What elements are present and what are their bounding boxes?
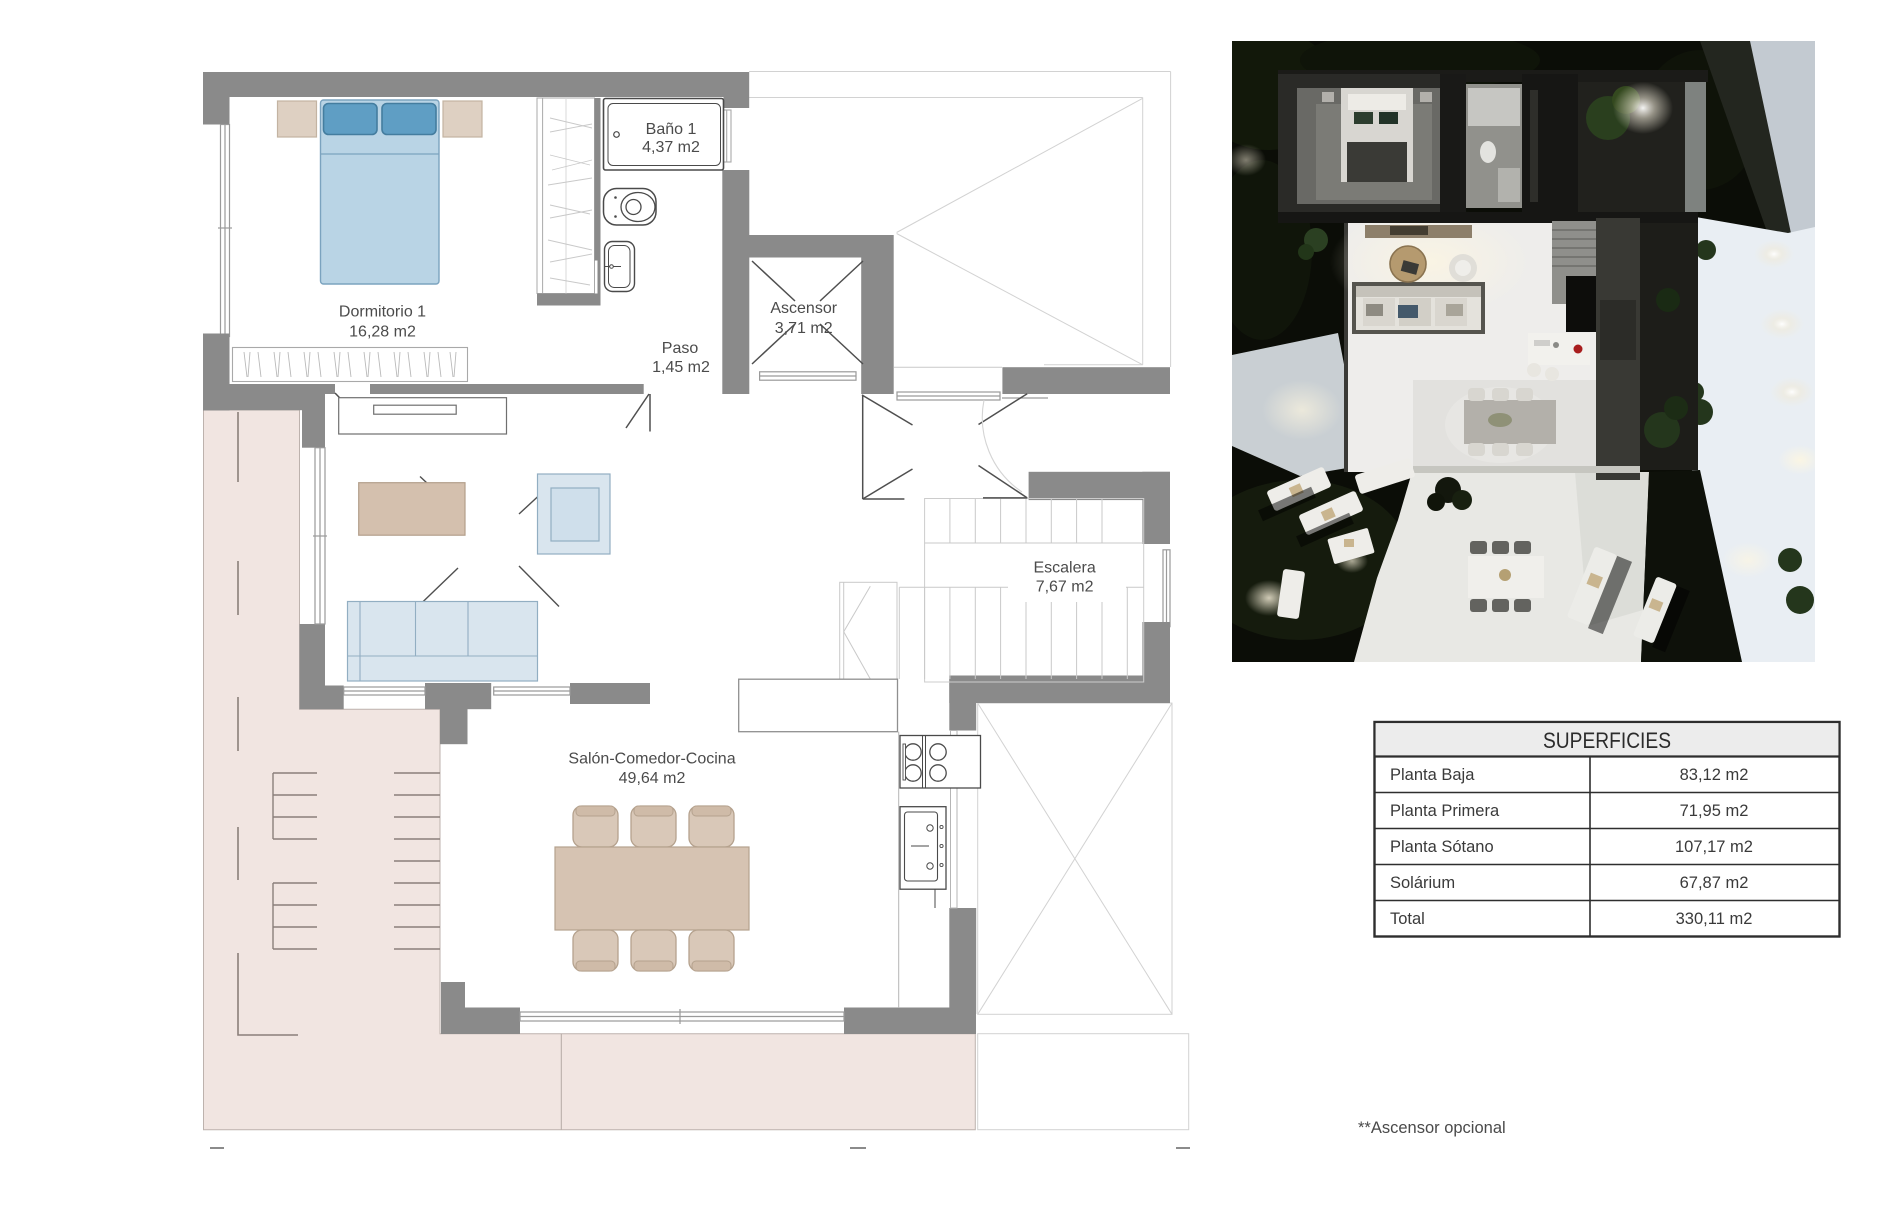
svg-text:49,64 m2: 49,64 m2 — [619, 770, 686, 787]
svg-text:Planta Sótano: Planta Sótano — [1390, 838, 1494, 856]
svg-text:Salón-Comedor-Cocina: Salón-Comedor-Cocina — [568, 751, 735, 768]
svg-text:Total: Total — [1390, 910, 1425, 928]
svg-text:Ascensor: Ascensor — [770, 300, 837, 317]
svg-text:Solárium: Solárium — [1390, 874, 1455, 892]
svg-text:71,95 m2: 71,95 m2 — [1680, 802, 1749, 820]
svg-text:Escalera: Escalera — [1033, 560, 1095, 577]
svg-text:1,45 m2: 1,45 m2 — [652, 359, 710, 376]
svg-text:Dormitorio 1: Dormitorio 1 — [339, 304, 426, 321]
svg-text:Planta Primera: Planta Primera — [1390, 802, 1500, 820]
svg-text:107,17 m2: 107,17 m2 — [1675, 838, 1753, 856]
svg-text:67,87 m2: 67,87 m2 — [1680, 874, 1749, 892]
svg-text:Paso: Paso — [662, 340, 699, 357]
svg-text:16,28 m2: 16,28 m2 — [349, 324, 416, 341]
svg-text:7,67 m2: 7,67 m2 — [1036, 579, 1094, 596]
svg-text:Baño 1: Baño 1 — [646, 121, 697, 138]
svg-text:**Ascensor opcional: **Ascensor opcional — [1358, 1119, 1506, 1137]
svg-text:SUPERFICIES: SUPERFICIES — [1543, 728, 1671, 753]
svg-text:3,71 m2: 3,71 m2 — [775, 320, 833, 337]
svg-text:Planta Baja: Planta Baja — [1390, 766, 1475, 784]
svg-text:330,11 m2: 330,11 m2 — [1676, 910, 1753, 928]
svg-text:4,37 m2: 4,37 m2 — [642, 139, 700, 156]
svg-text:83,12 m2: 83,12 m2 — [1680, 766, 1749, 784]
